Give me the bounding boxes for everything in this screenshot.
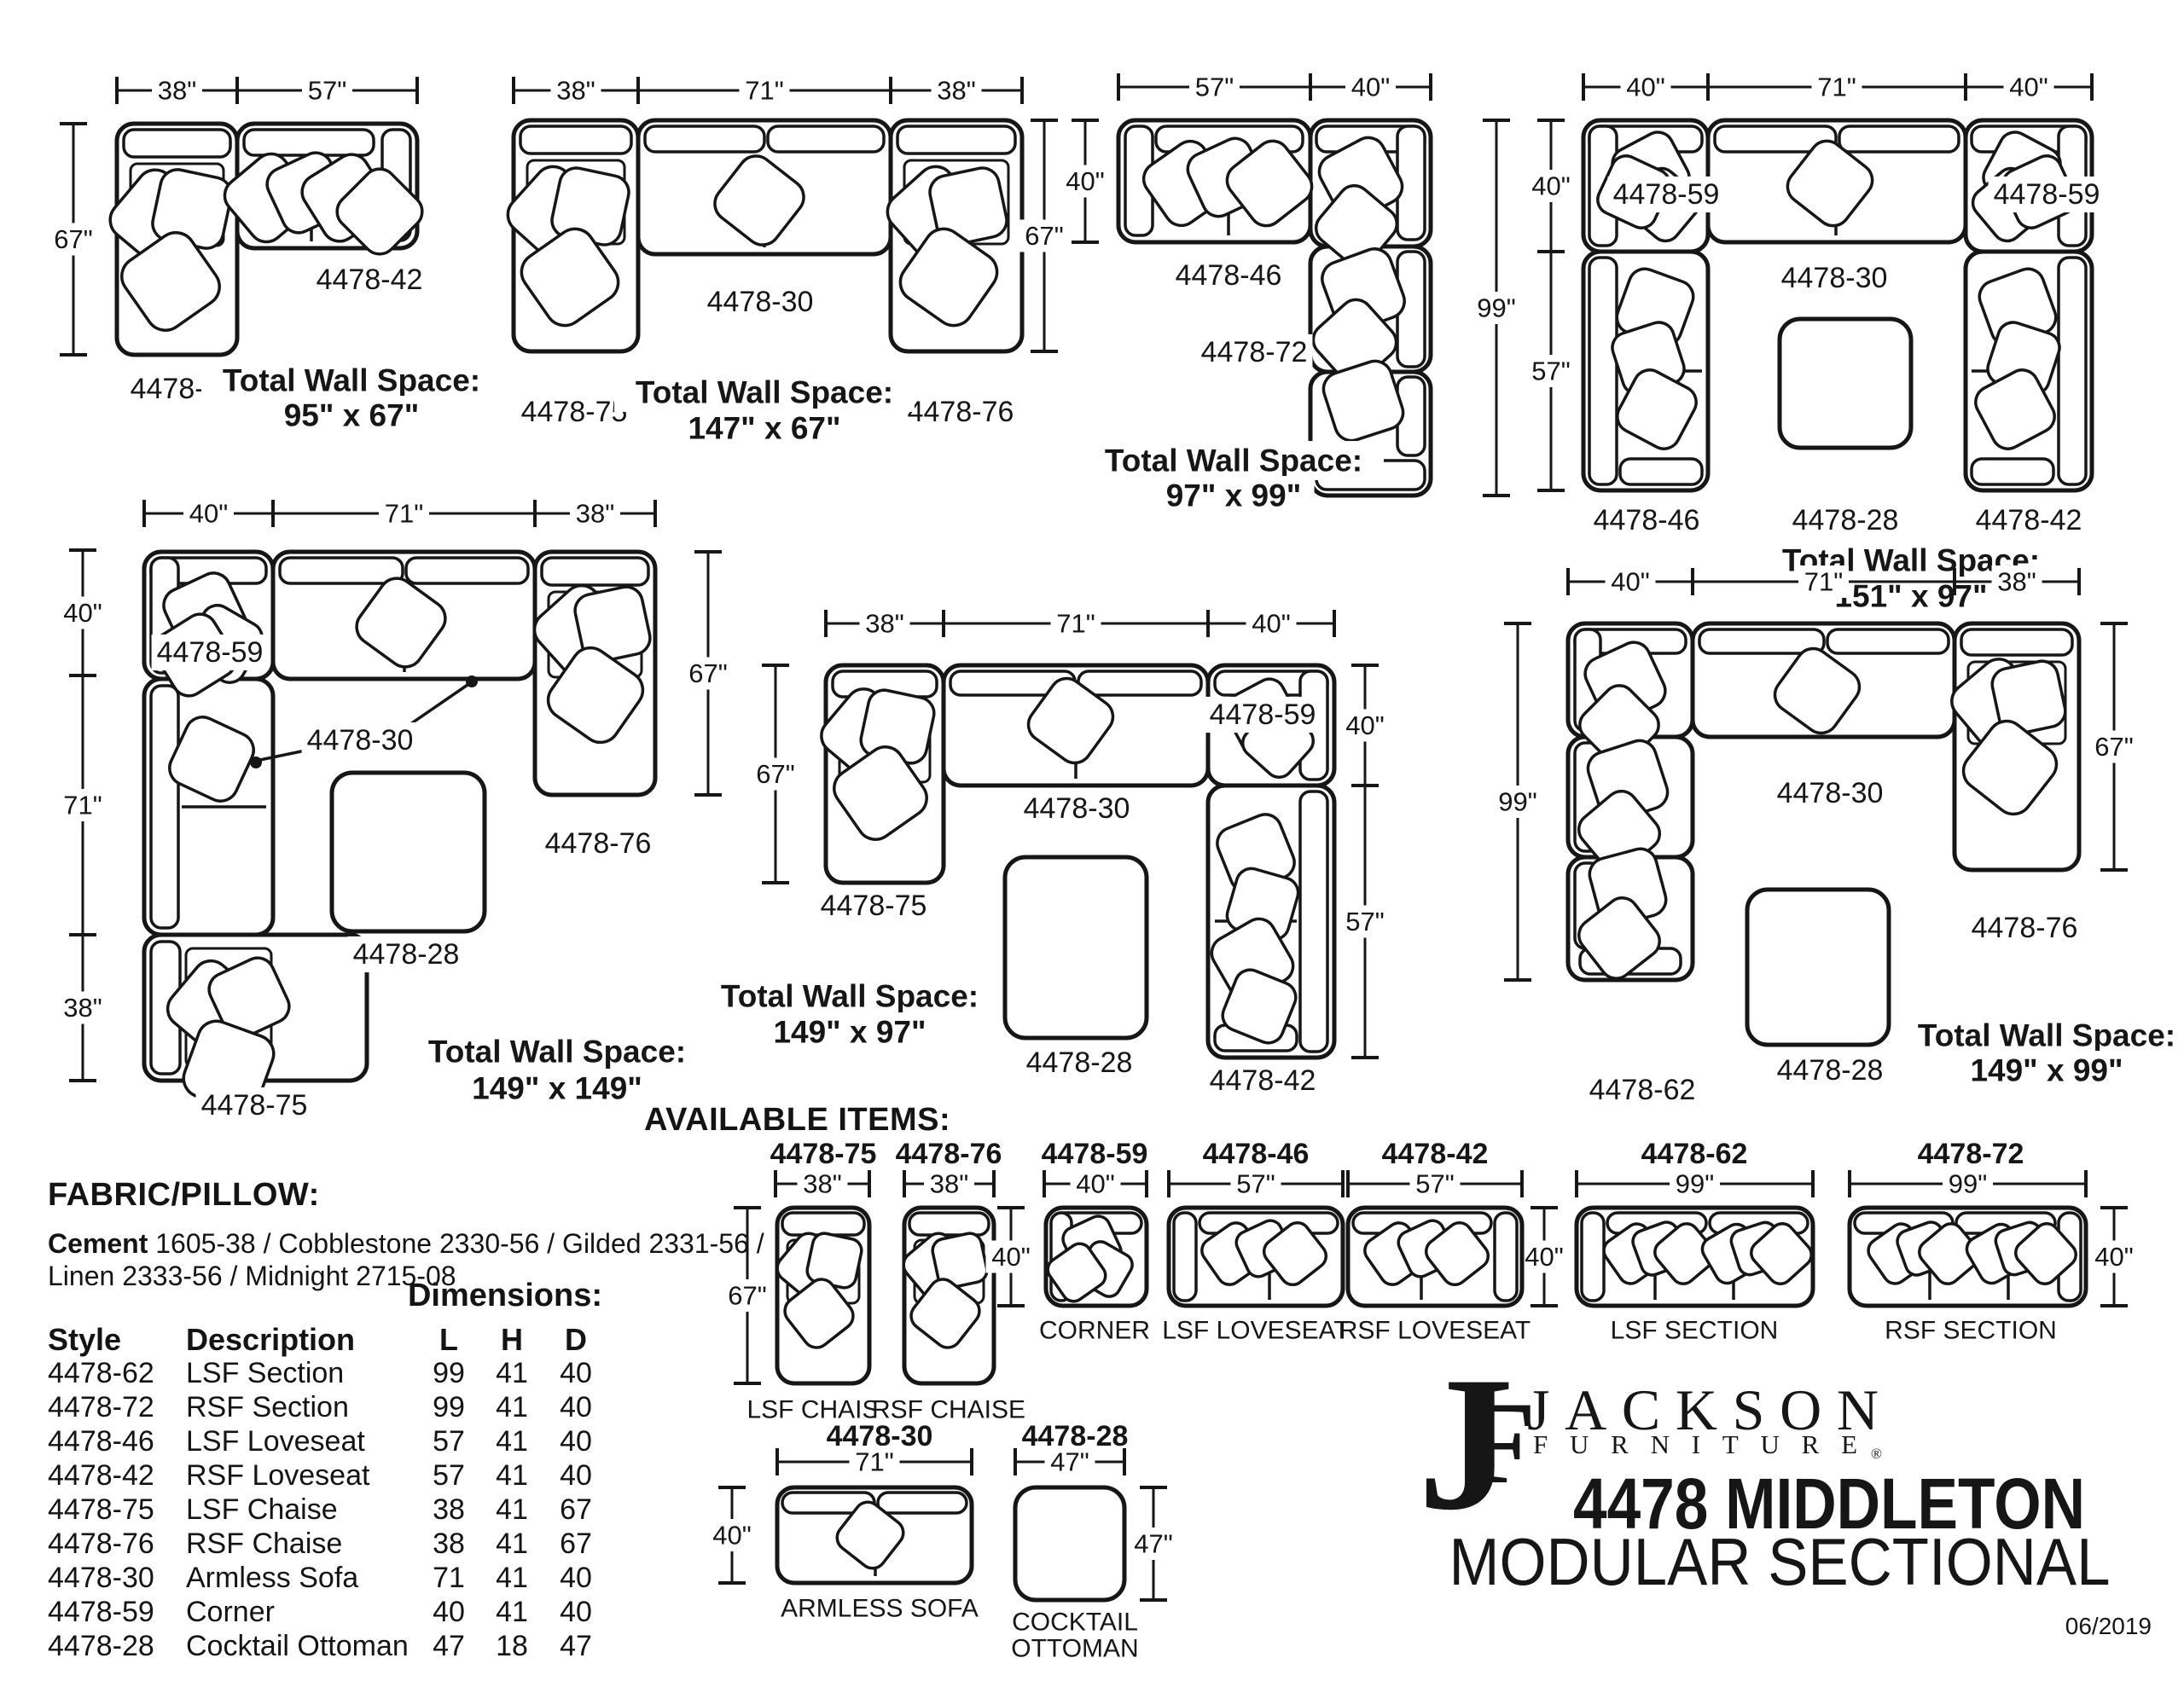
dimension-horizontal: 38" [775, 1168, 869, 1200]
piece-label: 151" x 97" [1834, 579, 1987, 614]
brand-text: 06/2019 [2065, 1613, 2152, 1639]
fabric-pillow-heading: FABRIC/PILLOW: [48, 1177, 764, 1214]
dimension-label: 57" [1345, 907, 1385, 936]
dimension-value: 40 [418, 1596, 479, 1629]
piece-label: Total Wall Space: [1918, 1018, 2175, 1053]
cushion-band [1839, 126, 1959, 152]
dimension-vertical: 40" [1519, 1208, 1570, 1306]
dimension-vertical: 40" [707, 1487, 758, 1583]
table-row: 4478-30Armless Sofa714140 [48, 1561, 607, 1595]
dimension-label: 71" [1817, 72, 1856, 102]
piece-label: 4478-42 [317, 264, 423, 296]
dimension-vertical: 57" [1526, 252, 1577, 490]
dimension-vertical: 67" [49, 124, 99, 355]
piece-label: COCKTAIL [1012, 1609, 1138, 1637]
cushion-band [878, 1493, 967, 1513]
cushion-band [1300, 791, 1327, 1052]
dimension-value: 99 [418, 1391, 479, 1424]
description: LSF Section [186, 1357, 418, 1390]
dimensions-table-header: Style Description L H D [48, 1322, 607, 1356]
dimension-horizontal: 38" [535, 497, 655, 530]
dimension-label: 40" [2094, 1242, 2134, 1272]
piece-label: 4478-42 [1382, 1138, 1489, 1170]
config-149x99: 40"71"38"99"67"4478-304478-764478-624478… [1493, 565, 2184, 1108]
dimension-horizontal: 71" [777, 1446, 972, 1478]
piece-label: Total Wall Space: [428, 1035, 686, 1070]
cushion-band [782, 1213, 864, 1235]
piece-label: 4478-59 [157, 636, 264, 669]
dimension-horizontal: 57" [1169, 1168, 1343, 1200]
dimension-label: 57" [1195, 72, 1234, 102]
table-row: 4478-59Corner404140 [48, 1595, 607, 1629]
dimension-label: 40" [1525, 1242, 1564, 1272]
piece-label: 4478-76 [1972, 912, 2078, 944]
piece-label: Total Wall Space: [1105, 443, 1362, 478]
piece-label: 4478-30 [707, 286, 814, 318]
dimension-label: 71" [1804, 567, 1844, 597]
ottoman-module [332, 773, 485, 931]
dimension-label: 40" [1351, 72, 1391, 102]
piece-label: 4478-28 [353, 938, 460, 971]
dimension-label: 38" [930, 1169, 969, 1199]
fabric-name-bold: Cement [48, 1228, 148, 1259]
dimension-label: 38" [556, 76, 595, 106]
piece-label: 4478-30 [307, 724, 414, 757]
description: RSF Loveseat [186, 1459, 418, 1493]
cushion-band [2059, 258, 2086, 484]
piece-label: 4478-75 [770, 1138, 877, 1170]
dimension-label: 47" [1050, 1447, 1089, 1477]
piece-label: 97" x 99" [1166, 478, 1302, 513]
table-row: 4478-75LSF Chaise384167 [48, 1493, 607, 1527]
dimension-label: 99" [1676, 1169, 1715, 1199]
dimension-horizontal: 38" [904, 1168, 994, 1200]
brand-text: FURNITURE [1533, 1429, 1857, 1459]
dimension-label: 71" [855, 1447, 894, 1477]
dimension-horizontal: 38" [891, 74, 1022, 107]
dimension-label: 99" [1477, 293, 1516, 323]
dimension-label: 40" [1531, 171, 1571, 201]
piece-label: 4478-62 [1641, 1138, 1748, 1170]
piece-label: 4478-30 [1781, 262, 1888, 294]
col-style: Style [48, 1322, 186, 1358]
piece-label: 4478-30 [1024, 792, 1130, 825]
style-code: 4478-30 [48, 1562, 186, 1595]
piece-label: 4478-72 [1918, 1138, 2024, 1170]
ottoman-module [1780, 319, 1911, 448]
dimension-value: 40 [544, 1425, 607, 1458]
piece-label: 4478-59 [1613, 178, 1720, 211]
dimension-label: 57" [1531, 357, 1571, 386]
cushion-band [1961, 629, 2072, 655]
col-d: D [544, 1322, 607, 1358]
dimension-label: 67" [756, 759, 795, 789]
dimension-vertical: 99" [1493, 623, 1543, 980]
description: RSF Section [186, 1391, 418, 1424]
description: Corner [186, 1596, 418, 1629]
dimension-vertical: 67" [683, 552, 734, 795]
config-95x67: 38"57"67"4478-424478-75Total Wall Space:… [49, 74, 502, 435]
dimension-label: 99" [1949, 1169, 1988, 1199]
dimension-value: 38 [418, 1528, 479, 1561]
dimension-value: 41 [479, 1391, 544, 1424]
dimension-vertical: 99" [1472, 120, 1522, 496]
dimension-horizontal: 71" [638, 74, 891, 107]
dimension-vertical: 40" [1340, 665, 1391, 786]
dimension-horizontal: 40" [1208, 607, 1334, 640]
col-h: H [479, 1322, 544, 1358]
dimension-label: 40" [1066, 166, 1105, 196]
dimension-horizontal: 40" [1966, 71, 2092, 103]
cushion-band [244, 130, 374, 155]
piece-label: Total Wall Space: [721, 979, 979, 1014]
dimension-value: 41 [479, 1493, 544, 1527]
dimension-value: 41 [479, 1357, 544, 1390]
dimension-vertical: 38" [58, 935, 108, 1081]
table-row: 4478-42RSF Loveseat574140 [48, 1458, 607, 1493]
dimension-value: 57 [418, 1459, 479, 1493]
dimension-label: 40" [63, 598, 102, 628]
dimension-horizontal: 99" [1577, 1168, 1813, 1200]
dimension-label: 38" [63, 993, 102, 1023]
dimension-vertical: 67" [751, 665, 801, 883]
piece-label: 4478-28 [1777, 1054, 1884, 1087]
dimension-value: 40 [544, 1596, 607, 1629]
description: LSF Loveseat [186, 1425, 418, 1458]
fabric-line-1-rest: 1605-38 / Cobblestone 2330-56 / Gilded 2… [148, 1228, 764, 1259]
brand-text: F [1464, 1377, 1536, 1508]
dimension-label: 71" [745, 76, 784, 106]
style-code: 4478-42 [48, 1459, 186, 1493]
dimension-value: 41 [479, 1596, 544, 1629]
dimension-horizontal: 40" [1044, 1168, 1147, 1200]
style-code: 4478-28 [48, 1630, 186, 1663]
brand-block: JFJACKSONFURNITURE®4478 MIDDLETONMODULAR… [1418, 1336, 2152, 1639]
dimension-value: 47 [418, 1630, 479, 1663]
dimension-vertical: 67" [2089, 623, 2140, 870]
spec-sheet-page: { "page": { "product_code_title": "4478 … [0, 0, 2184, 1687]
dimension-value: 40 [544, 1459, 607, 1493]
dimension-value: 18 [479, 1630, 544, 1663]
cushion-band [280, 558, 403, 583]
cushion-band [1972, 459, 2053, 484]
piece-label: 4478-59 [1042, 1138, 1148, 1170]
cushion-band [151, 686, 178, 928]
piece-label: 95" x 67" [284, 398, 420, 433]
cushion-band [1174, 1213, 1196, 1301]
description: Cocktail Ottoman [186, 1630, 418, 1663]
piece-label: 4478-75 [201, 1089, 308, 1122]
description: RSF Chaise [186, 1528, 418, 1561]
ottoman-module [1747, 890, 1889, 1045]
cushion-band [520, 126, 631, 154]
available-items-heading: AVAILABLE ITEMS: [644, 1102, 950, 1139]
cushion-band [1495, 1213, 1517, 1301]
dimension-label: 67" [54, 224, 93, 254]
dimension-value: 41 [479, 1562, 544, 1595]
leader-dot [250, 757, 262, 768]
dimension-label: 40" [1252, 609, 1291, 639]
dimension-value: 71 [418, 1562, 479, 1595]
dimension-horizontal: 57" [1348, 1168, 1522, 1200]
cushion-band [406, 558, 528, 583]
brand-text: ® [1871, 1446, 1882, 1462]
style-code: 4478-72 [48, 1391, 186, 1424]
config-151x97: 40"71"40"40"57"4478-594478-304478-594478… [1526, 71, 2106, 616]
dimension-label: 57" [1415, 1169, 1455, 1199]
dimension-value: 47 [544, 1630, 607, 1663]
piece-label: 4478-62 [1589, 1074, 1696, 1106]
dimension-label: 71" [1056, 609, 1095, 639]
dimension-label: 67" [688, 658, 728, 688]
dimension-horizontal: 40" [1310, 71, 1431, 103]
dimension-label: 99" [1498, 787, 1537, 817]
dimension-label: 67" [2094, 732, 2134, 762]
dimension-value: 41 [479, 1528, 544, 1561]
dimension-label: 67" [1025, 221, 1064, 251]
style-code: 4478-62 [48, 1357, 186, 1390]
style-code: 4478-46 [48, 1425, 186, 1458]
dimension-label: 38" [937, 76, 976, 106]
piece-label: 4478-76 [545, 827, 652, 860]
description: Armless Sofa [186, 1562, 418, 1595]
brand-text: MODULAR SECTIONAL [1449, 1524, 2111, 1599]
dimension-horizontal: 71" [1708, 71, 1966, 103]
dimension-label: 71" [385, 499, 424, 529]
dimension-value: 41 [479, 1459, 544, 1493]
dimension-horizontal: 38" [117, 74, 237, 107]
piece-label: CORNER [1039, 1317, 1150, 1345]
piece-label: 4478-42 [1210, 1064, 1316, 1097]
dimension-value: 40 [544, 1357, 607, 1390]
config-149x149: 40"71"38"40"71"38"67"4478-594478-304478-… [58, 497, 734, 1123]
dimension-horizontal: 38" [826, 607, 944, 640]
cushion-band [1078, 671, 1201, 695]
dimension-label: 38" [1997, 567, 2036, 597]
piece-label: LSF SECTION [1611, 1317, 1779, 1345]
piece-label: 4478-28 [1026, 1046, 1133, 1079]
dimension-value: 67 [544, 1493, 607, 1527]
dimension-label: 40" [189, 499, 229, 529]
piece-label: 4478-30 [1777, 777, 1884, 809]
dimension-value: 67 [544, 1528, 607, 1561]
cushion-band [1589, 258, 1617, 484]
dimension-value: 57 [418, 1425, 479, 1458]
dimension-label: 47" [1134, 1529, 1173, 1559]
dimension-horizontal: 40" [1568, 565, 1693, 598]
piece-label: 4478-75 [521, 396, 628, 428]
piece-label: LSF LOVESEAT [1162, 1317, 1350, 1345]
piece-label: 4478-42 [1976, 504, 2082, 536]
piece-label: 4478-76 [908, 396, 1014, 428]
style-code: 4478-59 [48, 1596, 186, 1629]
dimension-label: 40" [1076, 1169, 1115, 1199]
piece-label: RSF SECTION [1885, 1317, 2057, 1345]
dimension-horizontal: 71" [944, 607, 1208, 640]
piece-label: 4478-59 [1994, 178, 2100, 211]
dimension-value: 99 [418, 1357, 479, 1390]
dimension-value: 40 [544, 1391, 607, 1424]
cushion-band [909, 1213, 989, 1235]
dimension-value: 38 [418, 1493, 479, 1527]
description: LSF Chaise [186, 1493, 418, 1527]
dimension-label: 38" [803, 1169, 842, 1199]
dimension-horizontal: 99" [1850, 1168, 2086, 1200]
dimension-label: 40" [1626, 72, 1665, 102]
dimension-label: 38" [158, 76, 197, 106]
dimension-vertical: 71" [58, 675, 108, 935]
config-149x97: 38"71"40"67"40"57"4478-754478-304478-594… [700, 607, 1390, 1099]
piece-label: 4478-46 [1203, 1138, 1310, 1170]
cushion-band [768, 126, 884, 152]
dimension-value: 40 [544, 1562, 607, 1595]
table-row: 4478-62LSF Section994140 [48, 1356, 607, 1390]
dimension-horizontal: 71" [273, 497, 535, 530]
piece-label: 149" x 97" [773, 1015, 926, 1050]
dimension-label: 40" [1611, 567, 1650, 597]
dimension-vertical: 40" [2089, 1208, 2140, 1306]
col-description: Description [186, 1322, 418, 1358]
dimension-vertical: 57" [1340, 786, 1391, 1058]
config-97x99: 57"40"40"99"4478-464478-72Total Wall Spa… [1060, 71, 1522, 515]
fabric-line-1: Cement 1605-38 / Cobblestone 2330-56 / G… [48, 1227, 764, 1260]
dimension-horizontal: 40" [144, 497, 273, 530]
dimensions-table: Style Description L H D 4478-62LSF Secti… [48, 1322, 607, 1663]
dimension-value: 41 [479, 1425, 544, 1458]
piece-label: 4478-28 [1792, 504, 1899, 536]
piece-label: Total Wall Space: [636, 375, 893, 410]
dimension-label: 38" [865, 609, 904, 639]
piece-label: 4478-72 [1201, 336, 1308, 368]
dimension-label: 40" [991, 1242, 1031, 1272]
piece-label: 147" x 67" [688, 411, 840, 446]
piece-label: OTTOMAN [1011, 1635, 1138, 1663]
piece-label: 4478-75 [821, 890, 927, 922]
cushion-band [1827, 629, 1949, 653]
dimension-label: 40" [2009, 72, 2048, 102]
cushion-band [124, 130, 230, 157]
style-code: 4478-75 [48, 1493, 186, 1527]
piece-label: 4478-59 [1210, 699, 1316, 731]
piece-label: 149" x 149" [472, 1071, 642, 1106]
config-147x67: 38"71"38"67"4478-754478-304478-76Total W… [500, 74, 1069, 448]
cushion-band [542, 558, 648, 585]
dimension-horizontal: 40" [1583, 71, 1708, 103]
dimension-label: 57" [308, 76, 347, 106]
style-code: 4478-76 [48, 1528, 186, 1561]
dimensions-heading: Dimensions: [48, 1278, 602, 1314]
dimension-label: 57" [1236, 1169, 1275, 1199]
dimension-label: 38" [576, 499, 615, 529]
table-row: 4478-72RSF Section994140 [48, 1390, 607, 1424]
dimension-label: 40" [1345, 710, 1385, 740]
piece-label: ARMLESS SOFA [781, 1595, 979, 1623]
table-row: 4478-28Cocktail Ottoman471847 [48, 1629, 607, 1663]
table-row: 4478-46LSF Loveseat574140 [48, 1424, 607, 1458]
dimension-vertical: 67" [1019, 120, 1070, 351]
dimensions-table-body: 4478-62LSF Section9941404478-72RSF Secti… [48, 1356, 607, 1663]
ottoman-module [1005, 857, 1147, 1038]
piece-label: 4478-76 [896, 1138, 1002, 1170]
cushion-band [645, 126, 764, 152]
dimension-horizontal: 57" [1118, 71, 1310, 103]
dimension-vertical: 47" [1129, 1487, 1179, 1600]
piece-label: 4478-46 [1176, 259, 1282, 292]
dimension-label: 40" [712, 1521, 752, 1551]
dimension-horizontal: 57" [237, 74, 417, 107]
dimension-label: 71" [63, 791, 102, 820]
dimension-horizontal: 38" [514, 74, 638, 107]
cushion-band [897, 126, 1015, 154]
fabric-pillow-section: FABRIC/PILLOW: Cement 1605-38 / Cobblest… [48, 1177, 764, 1292]
ottoman-module [1015, 1487, 1124, 1600]
cushion-band [1582, 1213, 1604, 1301]
col-l: L [418, 1322, 479, 1358]
piece-label: 4478-46 [1594, 504, 1700, 536]
dimension-vertical: 40" [1526, 120, 1577, 252]
piece-label: 149" x 99" [1970, 1053, 2123, 1088]
table-row: 4478-76RSF Chaise384167 [48, 1527, 607, 1561]
piece-label: Total Wall Space: [223, 363, 480, 398]
dimension-vertical: 40" [58, 550, 108, 675]
cushion-band [1620, 459, 1702, 484]
